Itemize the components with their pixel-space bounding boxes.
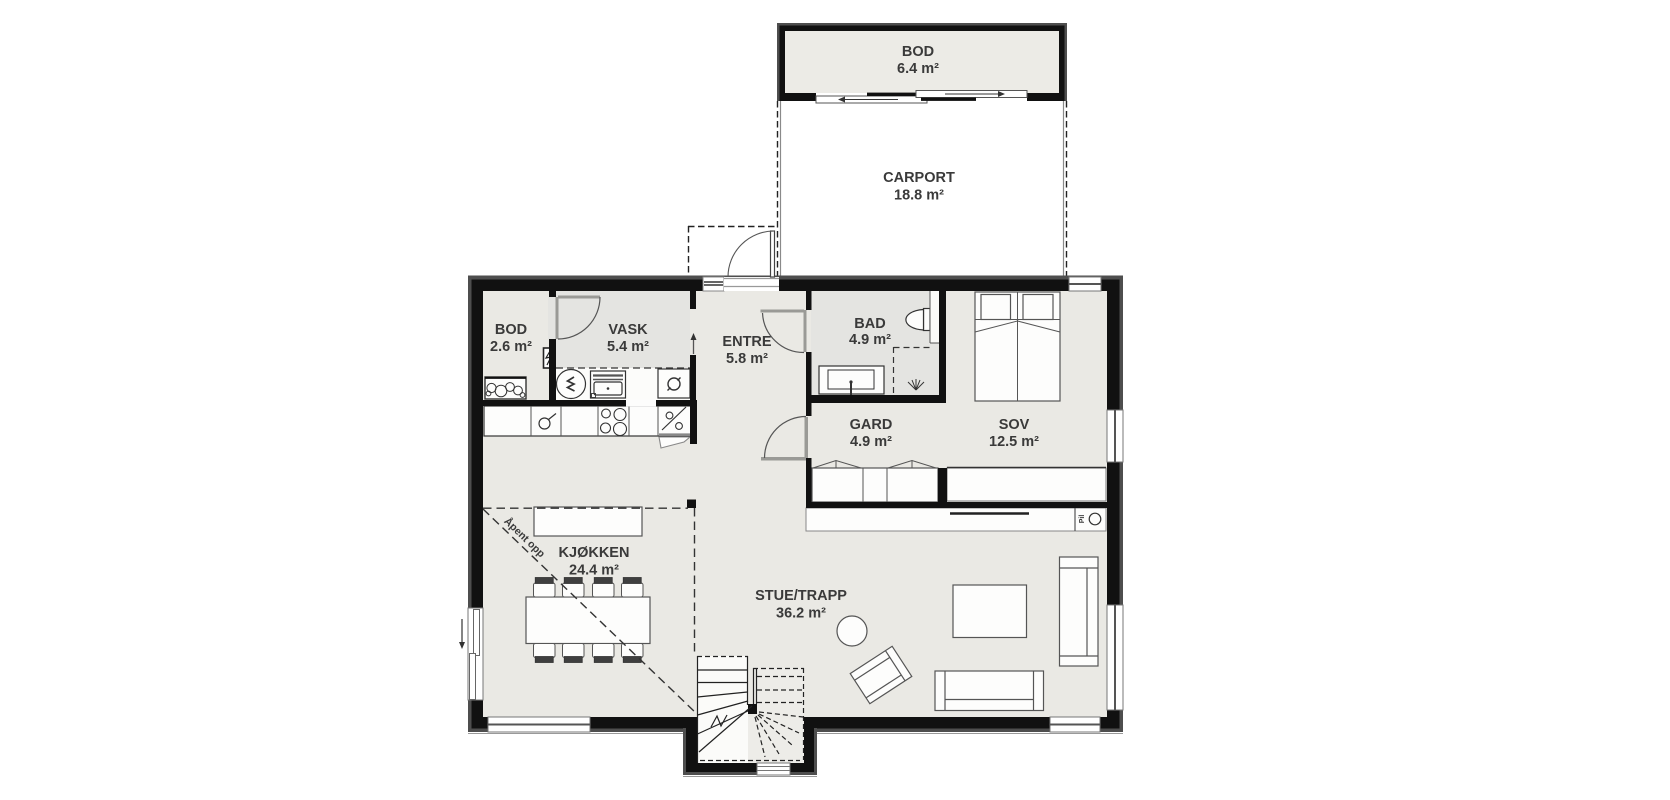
svg-text:4.9 m²: 4.9 m² (849, 332, 891, 348)
svg-text:4.9 m²: 4.9 m² (850, 434, 892, 450)
svg-text:5.8 m²: 5.8 m² (726, 351, 768, 367)
svg-text:BAD: BAD (854, 316, 885, 332)
svg-text:KJØKKEN: KJØKKEN (559, 545, 630, 561)
svg-text:Pil: Pil (1079, 515, 1086, 524)
svg-text:STUE/TRAPP: STUE/TRAPP (755, 588, 847, 604)
svg-text:6.4 m²: 6.4 m² (897, 61, 939, 77)
svg-text:VASK: VASK (608, 322, 648, 338)
svg-text:18.8 m²: 18.8 m² (894, 188, 944, 204)
svg-text:24.4 m²: 24.4 m² (569, 563, 619, 579)
svg-text:BOD: BOD (495, 322, 527, 338)
svg-text:5.4 m²: 5.4 m² (607, 339, 649, 355)
svg-text:CARPORT: CARPORT (883, 170, 955, 186)
svg-text:GARD: GARD (850, 417, 893, 433)
svg-text:2.6 m²: 2.6 m² (490, 339, 532, 355)
svg-text:36.2 m²: 36.2 m² (776, 606, 826, 622)
svg-text:SOV: SOV (999, 417, 1030, 433)
svg-text:BOD: BOD (902, 44, 934, 60)
svg-text:ENTRE: ENTRE (722, 334, 771, 350)
svg-text:12.5 m²: 12.5 m² (989, 434, 1039, 450)
